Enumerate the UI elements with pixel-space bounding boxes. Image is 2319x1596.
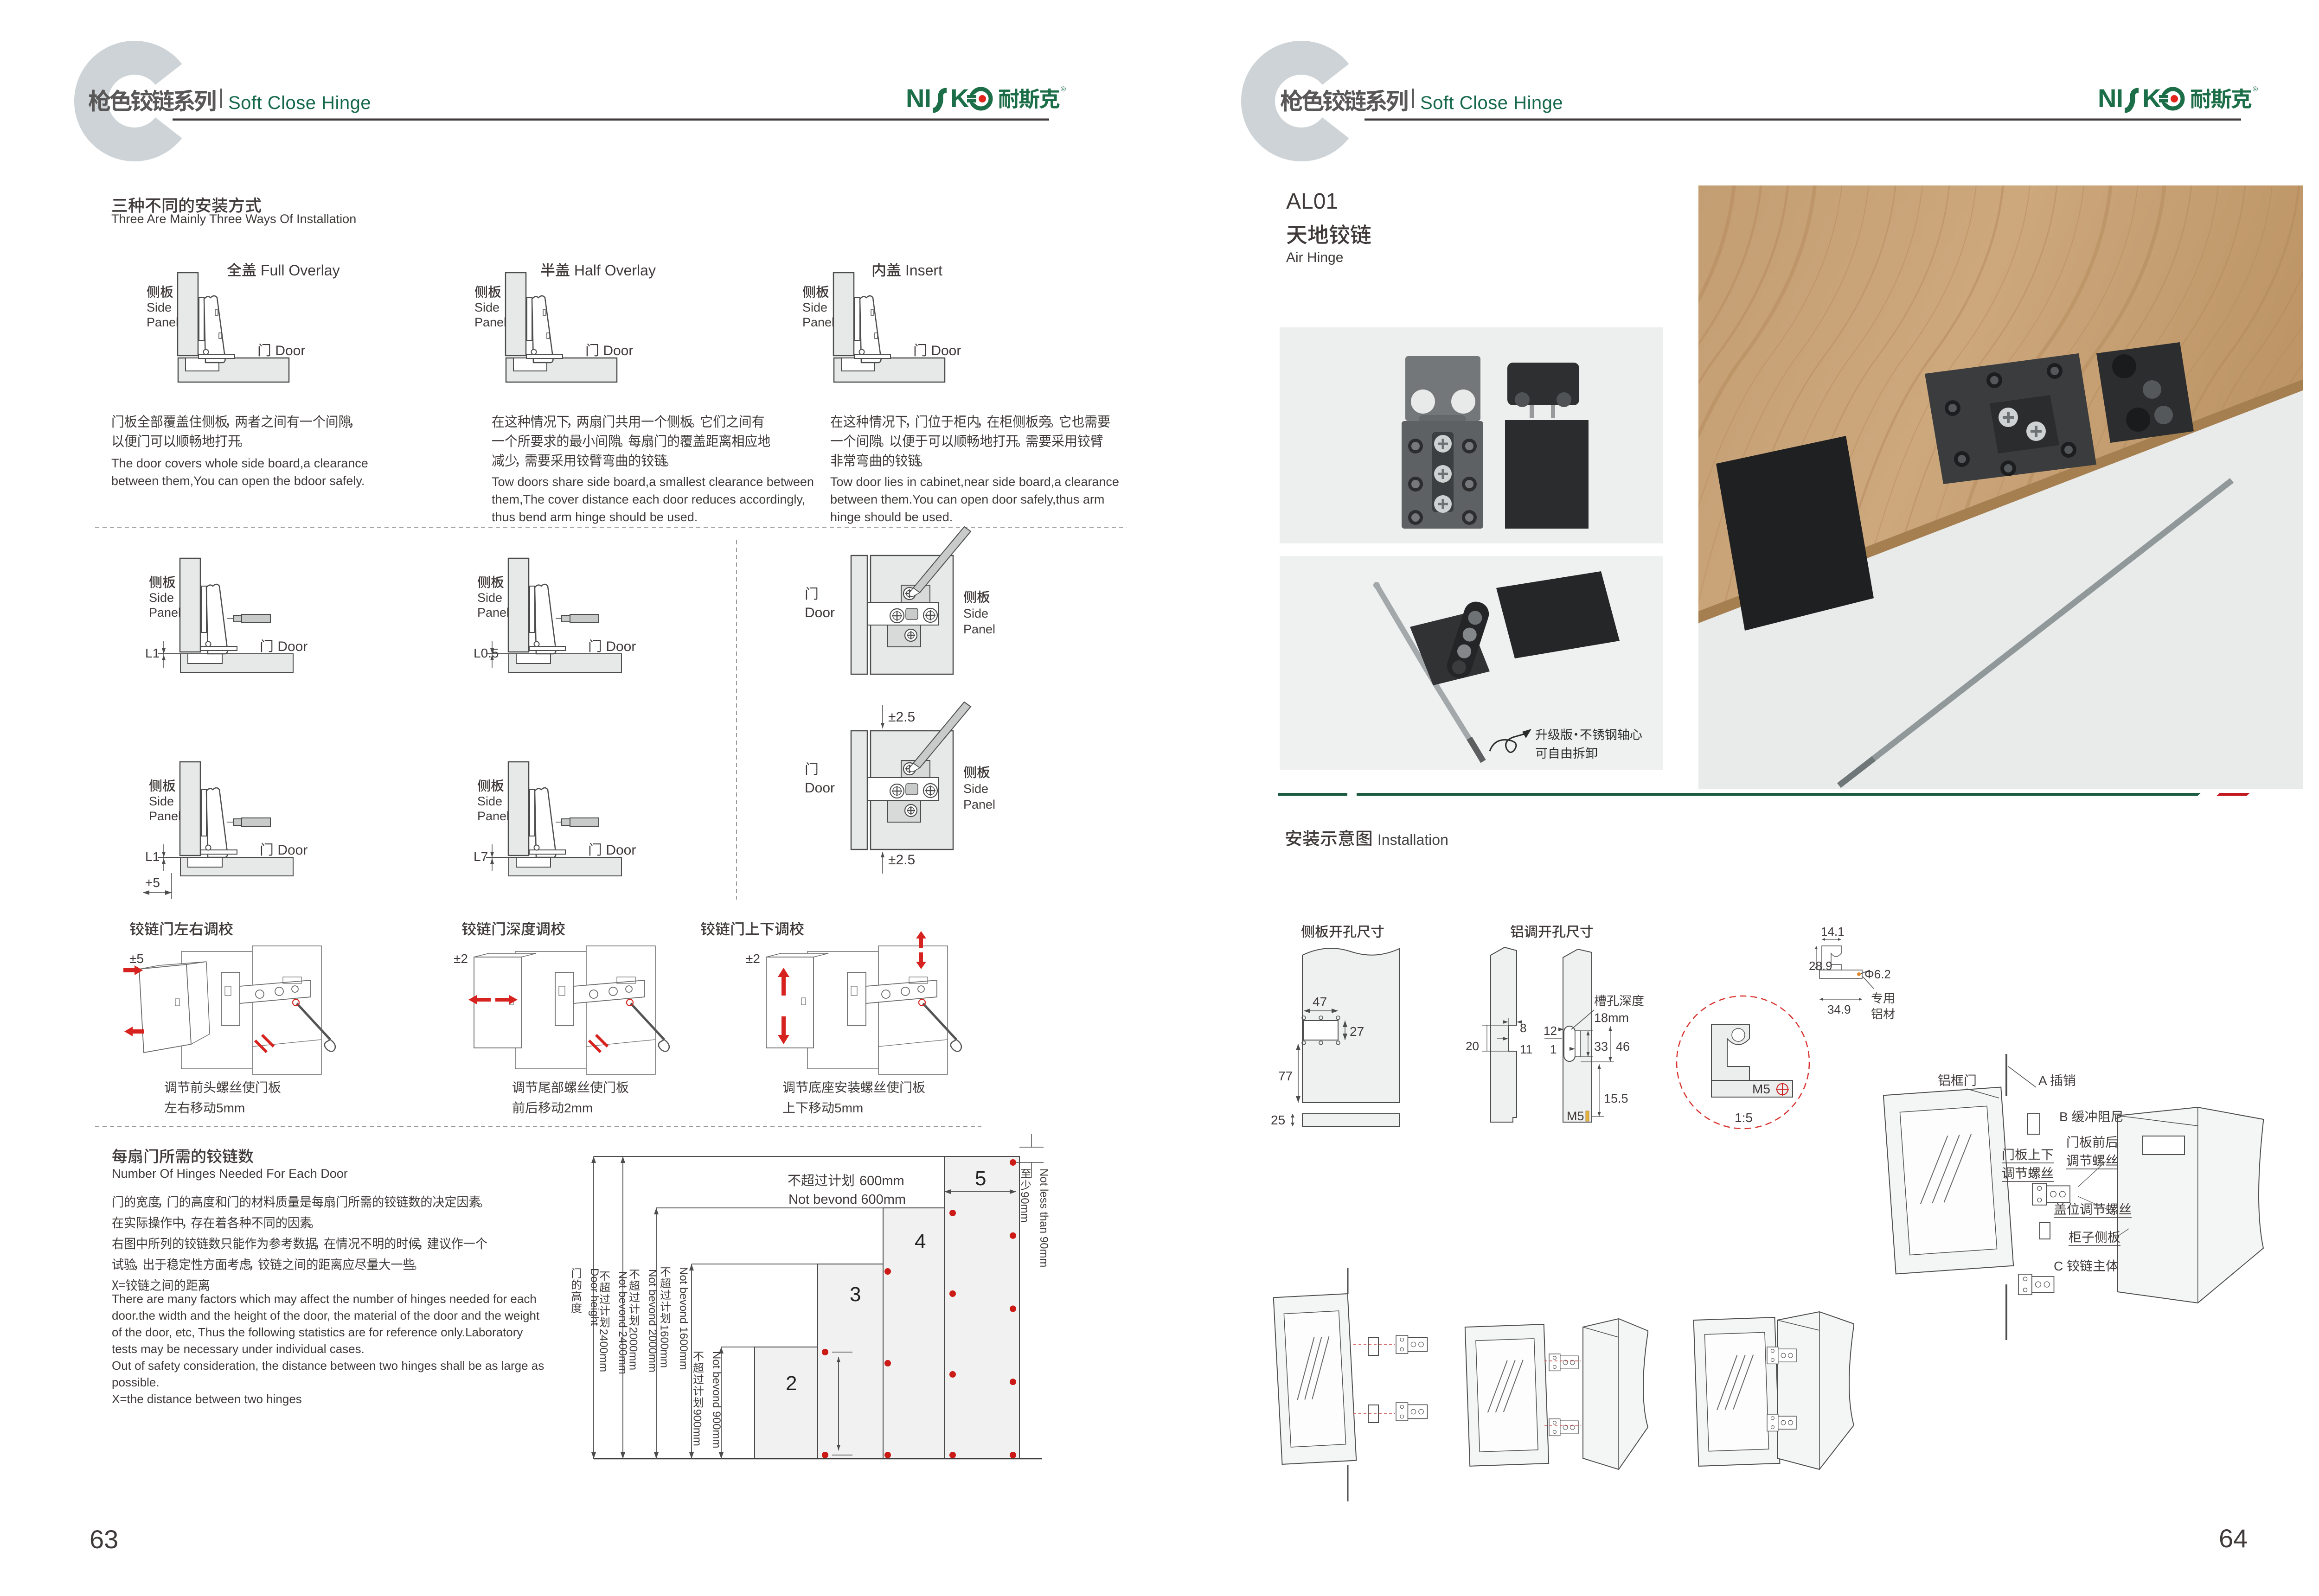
svg-text:Not bevond 1600mm: Not bevond 1600mm <box>677 1267 690 1370</box>
svg-text:Side: Side <box>474 300 500 314</box>
svg-text:X=the distance between two hin: X=the distance between two hinges <box>112 1392 302 1406</box>
svg-text:64: 64 <box>2219 1524 2248 1553</box>
svg-text:Side: Side <box>147 300 172 314</box>
svg-text:L1: L1 <box>145 849 160 864</box>
svg-text:Panel: Panel <box>474 315 506 329</box>
svg-text:of the door, etc, Thus the fol: of the door, etc, Thus the following sta… <box>112 1325 523 1339</box>
svg-text:900mm: 900mm <box>691 1409 703 1446</box>
svg-text:Side: Side <box>963 782 988 796</box>
svg-text:Side: Side <box>802 300 827 314</box>
svg-text:2400mm: 2400mm <box>597 1329 609 1372</box>
svg-text:Side: Side <box>477 591 502 605</box>
svg-text:14.1: 14.1 <box>1821 925 1845 938</box>
svg-text:Panel: Panel <box>147 315 179 329</box>
svg-text:1: 1 <box>1550 1042 1557 1056</box>
svg-text:Door: Door <box>805 605 835 620</box>
svg-text:20: 20 <box>1466 1039 1479 1053</box>
svg-text:Air Hinge: Air Hinge <box>1286 250 1343 265</box>
svg-text:Panel: Panel <box>963 798 995 811</box>
svg-text:Panel: Panel <box>963 622 995 636</box>
svg-text:Tow doors share side board,a s: Tow doors share side board,a smallest cl… <box>492 475 814 489</box>
svg-text:34.9: 34.9 <box>1827 1002 1851 1016</box>
svg-text:Panel: Panel <box>477 809 509 823</box>
svg-text:±5: ±5 <box>129 951 144 966</box>
svg-text:M5: M5 <box>1567 1109 1584 1123</box>
svg-text:Out of safety consideration, t: Out of safety consideration, the distanc… <box>112 1359 544 1373</box>
svg-text:Panel: Panel <box>149 606 181 619</box>
svg-text:15.5: 15.5 <box>1604 1092 1628 1105</box>
svg-text:them,The cover distance each d: them,The cover distance each door reduce… <box>492 492 805 506</box>
svg-text:27: 27 <box>1350 1024 1364 1039</box>
svg-text:90mm: 90mm <box>1018 1192 1031 1223</box>
svg-text:door.the width and the height: door.the width and the height of the doo… <box>112 1309 540 1322</box>
svg-text:Not less than 90mm: Not less than 90mm <box>1038 1168 1050 1267</box>
svg-text:Side: Side <box>963 606 988 620</box>
svg-text:2000mm: 2000mm <box>627 1327 639 1370</box>
svg-text:2: 2 <box>786 1372 797 1395</box>
svg-text:Not bevond 2000mm: Not bevond 2000mm <box>646 1269 659 1373</box>
svg-text:K: K <box>950 83 969 113</box>
svg-text:between them.You can open door: between them.You can open door safely,th… <box>830 492 1104 506</box>
svg-text:A: A <box>2038 1073 2050 1088</box>
svg-text:C: C <box>2054 1259 2067 1273</box>
svg-text:between them,You can open the: between them,You can open the bdoor safe… <box>111 474 365 488</box>
svg-text:±2: ±2 <box>454 951 468 966</box>
svg-text:M5: M5 <box>1752 1082 1770 1096</box>
svg-text:47: 47 <box>1313 995 1327 1009</box>
svg-text:Soft Close Hinge: Soft Close Hinge <box>1420 93 1563 113</box>
svg-text:Panel: Panel <box>477 606 509 619</box>
svg-text:Panel: Panel <box>149 809 181 823</box>
svg-text:Door: Door <box>271 343 305 358</box>
svg-text:77: 77 <box>1278 1069 1293 1083</box>
svg-text:Three Are Mainly Three Ways Of: Three Are Mainly Three Ways Of Installat… <box>111 212 356 226</box>
svg-text:B: B <box>2059 1110 2071 1124</box>
svg-text:28.9: 28.9 <box>1809 959 1832 973</box>
svg-text:Insert: Insert <box>901 262 942 279</box>
svg-text:Door: Door <box>599 343 633 358</box>
svg-text:63: 63 <box>90 1525 118 1554</box>
svg-text:600mm: 600mm <box>859 1174 904 1188</box>
svg-text:12: 12 <box>1544 1024 1557 1038</box>
svg-text:11: 11 <box>1520 1042 1532 1056</box>
svg-text:There are many factors which m: There are many factors which may affect … <box>112 1292 537 1306</box>
svg-text:5mm: 5mm <box>834 1101 863 1115</box>
svg-text:K: K <box>2142 83 2161 113</box>
svg-text:Installation: Installation <box>1373 831 1448 848</box>
svg-text:Door: Door <box>274 639 307 654</box>
svg-text:2mm: 2mm <box>564 1101 593 1115</box>
svg-text:4: 4 <box>915 1230 926 1253</box>
svg-text:1:5: 1:5 <box>1735 1111 1753 1125</box>
svg-text:Door: Door <box>602 843 636 858</box>
svg-text:Door: Door <box>927 343 961 358</box>
svg-text:18mm: 18mm <box>1594 1011 1629 1025</box>
svg-text:3: 3 <box>850 1283 861 1306</box>
svg-text:25: 25 <box>1271 1113 1285 1127</box>
svg-text:46: 46 <box>1616 1040 1630 1053</box>
svg-text:Door height: Door height <box>588 1268 601 1326</box>
svg-text:Half Overlay: Half Overlay <box>570 262 656 279</box>
svg-text:±2: ±2 <box>746 951 760 966</box>
svg-text:Not bevond 900mm: Not bevond 900mm <box>710 1351 723 1448</box>
svg-text:Soft Close Hinge: Soft Close Hinge <box>228 93 371 113</box>
svg-text:1600mm: 1600mm <box>658 1325 670 1368</box>
svg-text:®: ® <box>1061 85 1066 93</box>
svg-text:L0.5: L0.5 <box>474 646 499 660</box>
svg-text:thus bend arm hinge should be: thus bend arm hinge should be used. <box>492 510 698 524</box>
svg-text:L1: L1 <box>145 646 160 660</box>
svg-text:NI: NI <box>906 83 931 113</box>
svg-text:Tow door lies in cabinet,near: Tow door lies in cabinet,near side board… <box>830 475 1119 489</box>
svg-text:Door: Door <box>602 639 636 654</box>
svg-text:Side: Side <box>149 591 174 605</box>
svg-text:±2.5: ±2.5 <box>888 709 915 725</box>
svg-text:+5: +5 <box>145 875 160 890</box>
svg-text:Full Overlay: Full Overlay <box>256 262 340 279</box>
svg-text:NI: NI <box>2098 83 2123 113</box>
svg-text:tests may be necessary under i: tests may be necessary under individual … <box>112 1342 365 1356</box>
svg-text:Door: Door <box>805 780 835 796</box>
svg-text:AL01: AL01 <box>1286 189 1338 214</box>
svg-text:±2.5: ±2.5 <box>888 852 915 868</box>
svg-text:Not bevond 600mm: Not bevond 600mm <box>788 1192 906 1207</box>
svg-text:L7: L7 <box>474 849 488 864</box>
svg-text:Door: Door <box>274 843 307 858</box>
svg-text:5mm: 5mm <box>216 1101 245 1115</box>
svg-text:Side: Side <box>477 794 502 808</box>
svg-text:possible.: possible. <box>112 1375 160 1389</box>
svg-text:Φ6.2: Φ6.2 <box>1864 967 1891 981</box>
svg-text:®: ® <box>2253 85 2258 93</box>
svg-text:5: 5 <box>975 1167 986 1190</box>
svg-text:Panel: Panel <box>802 315 834 329</box>
svg-text:Number Of Hinges Needed For Ea: Number Of Hinges Needed For Each Door <box>112 1167 348 1181</box>
svg-text:Side: Side <box>149 794 174 808</box>
svg-text:The door covers whole side boa: The door covers whole side board,a clear… <box>111 456 368 470</box>
svg-text:33: 33 <box>1594 1040 1608 1053</box>
svg-text:hinge should be used.: hinge should be used. <box>830 510 953 524</box>
